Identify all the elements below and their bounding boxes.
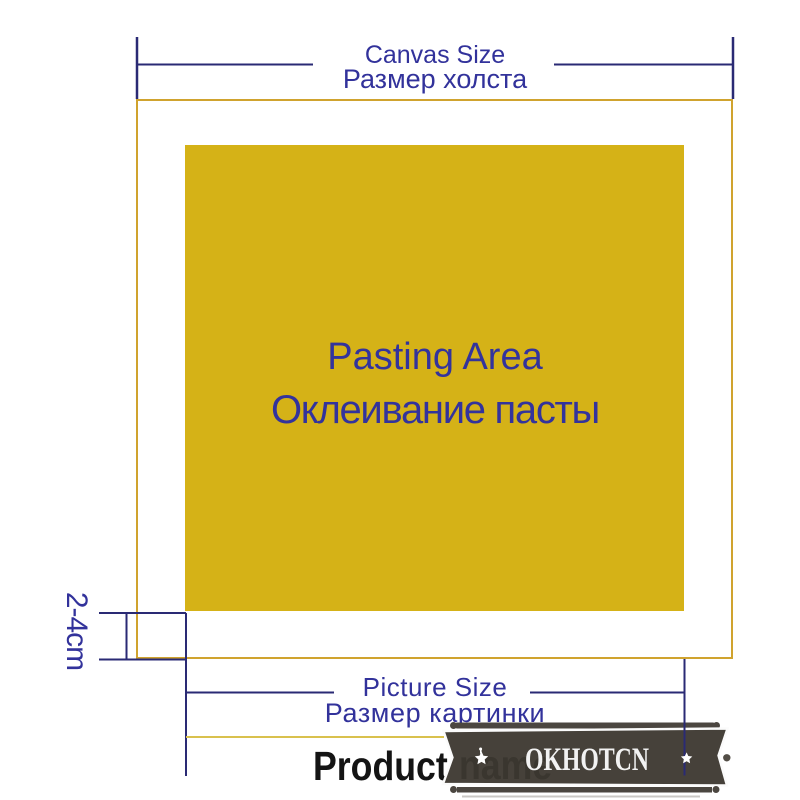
svg-text:OKHOTCN: OKHOTCN [525,742,649,778]
